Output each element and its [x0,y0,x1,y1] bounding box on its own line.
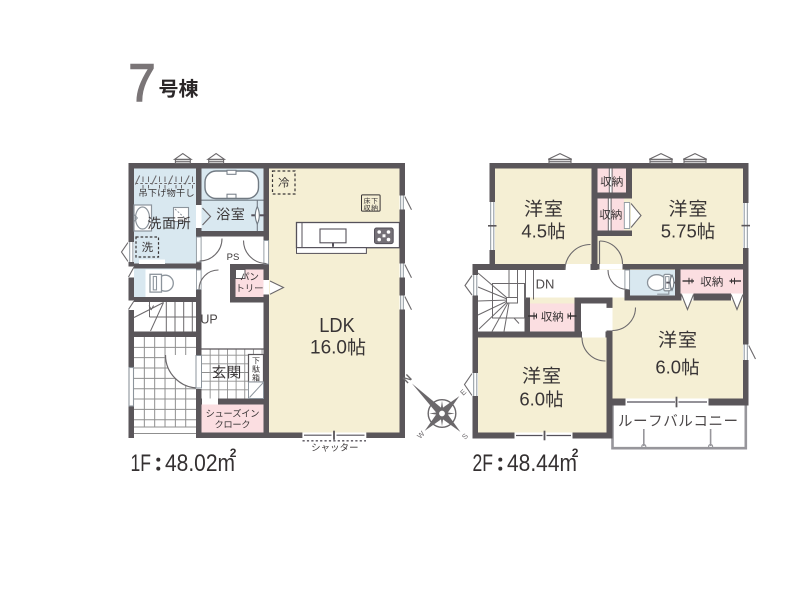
svg-text:16.0: 16.0 [310,338,347,359]
svg-text:5.75: 5.75 [661,221,697,242]
svg-text:48.02m: 48.02m [165,450,235,477]
svg-text:2: 2 [572,446,579,460]
svg-text:E: E [458,387,468,397]
svg-text:UP: UP [200,313,217,327]
svg-text:6.0: 6.0 [655,357,681,378]
svg-text:DN: DN [536,277,555,292]
svg-text:2F: 2F [473,450,494,477]
svg-text:48.44m: 48.44m [507,450,577,477]
svg-text:S: S [460,432,470,442]
svg-text:6.0: 6.0 [519,389,545,410]
svg-text:2: 2 [230,446,237,460]
svg-text:7: 7 [129,54,156,113]
svg-text:1F: 1F [131,450,152,477]
svg-text:4.5: 4.5 [521,221,547,242]
svg-text:LDK: LDK [319,315,355,337]
svg-text:PS: PS [227,252,240,263]
